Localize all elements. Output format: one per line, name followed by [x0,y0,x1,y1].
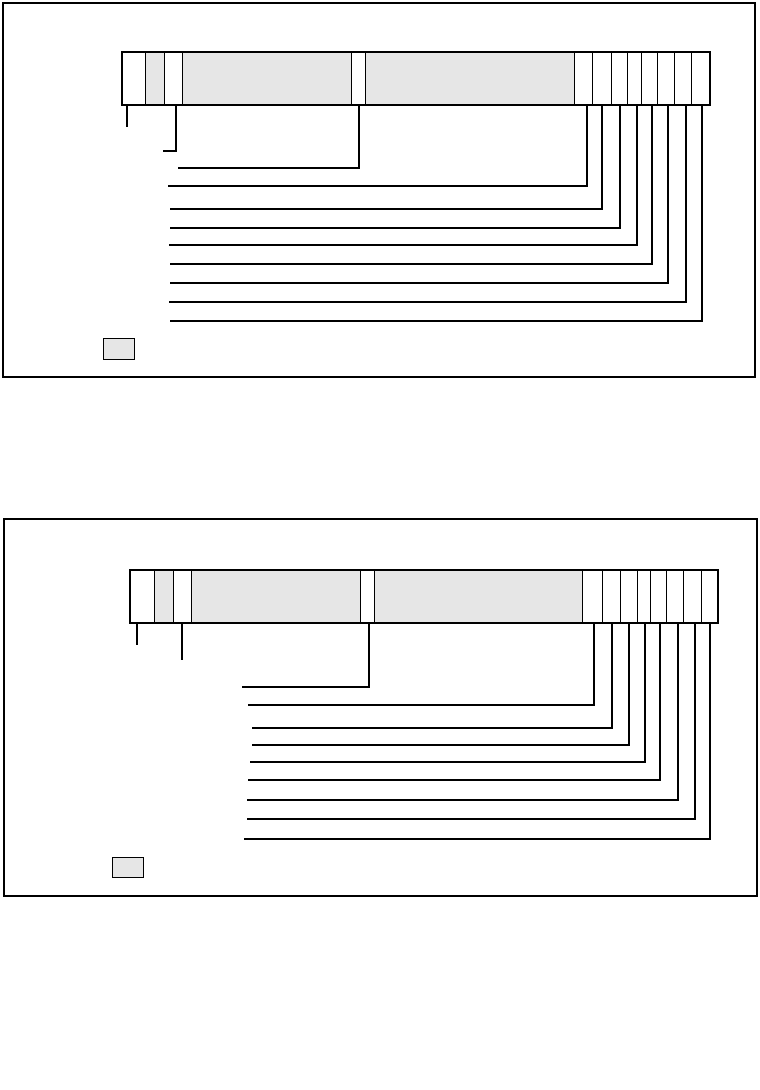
callout-horizontal-line [252,744,630,746]
field-cell-white [657,53,674,104]
field-cell-white [637,571,651,622]
field-cell-white [173,571,191,622]
field-cell-white [602,571,620,622]
callout-vertical-line [126,106,128,127]
callout-horizontal-line [170,208,603,210]
field-cell-gray [145,53,164,104]
callout-horizontal-line [168,185,588,187]
field-cell-gray [182,53,352,104]
callout-vertical-line [368,624,370,688]
field-cell-white [123,53,145,104]
callout-vertical-line [175,106,177,152]
callout-vertical-line [628,624,630,746]
document-page [0,0,760,1090]
callout-horizontal-line [252,727,613,729]
field-cell-white [627,53,642,104]
legend-swatch-box [103,338,135,360]
field-cell-white [641,53,657,104]
field-cell-white [592,53,611,104]
callout-vertical-line [601,106,603,210]
field-cell-white [360,571,374,622]
callout-vertical-line [709,624,711,840]
callout-horizontal-line [169,244,638,246]
callout-vertical-line [136,624,138,645]
callout-horizontal-line [170,320,703,322]
field-cell-white [674,53,691,104]
callout-vertical-line [358,106,360,169]
field-cell-white [620,571,637,622]
callout-vertical-line [636,106,638,246]
callout-vertical-line [659,624,661,781]
callout-horizontal-line [169,301,687,303]
callout-horizontal-line [170,263,653,265]
callout-vertical-line [677,624,679,801]
callout-vertical-line [586,106,588,187]
callout-horizontal-line [248,704,595,706]
field-cell-gray [374,571,582,622]
callout-vertical-line [611,624,613,729]
format-diagram-2-field-bar [129,569,719,624]
field-cell-white [701,571,717,622]
field-cell-gray [365,53,574,104]
field-cell-white [691,53,709,104]
callout-vertical-line [181,624,183,660]
legend-swatch-box [112,857,144,878]
callout-horizontal-line [178,167,360,169]
field-cell-gray [191,571,361,622]
callout-vertical-line [667,106,669,284]
field-cell-white [650,571,666,622]
field-cell-white [582,571,602,622]
callout-vertical-line [644,624,646,763]
callout-vertical-line [685,106,687,303]
callout-vertical-line [619,106,621,229]
callout-vertical-line [651,106,653,265]
field-cell-white [666,571,683,622]
callout-vertical-line [701,106,703,322]
field-cell-white [611,53,627,104]
callout-vertical-line [694,624,696,820]
callout-horizontal-line [250,761,646,763]
callout-horizontal-line [248,779,661,781]
format-diagram-1-field-bar [121,51,711,106]
field-cell-gray [154,571,173,622]
field-cell-white [351,53,365,104]
callout-horizontal-line [163,150,177,152]
field-cell-white [574,53,592,104]
callout-horizontal-line [242,686,370,688]
callout-horizontal-line [247,818,696,820]
callout-horizontal-line [244,838,711,840]
callout-horizontal-line [170,282,669,284]
field-cell-white [683,571,701,622]
callout-vertical-line [593,624,595,706]
field-cell-white [164,53,182,104]
field-cell-white [131,571,154,622]
callout-horizontal-line [247,799,679,801]
callout-horizontal-line [170,227,621,229]
